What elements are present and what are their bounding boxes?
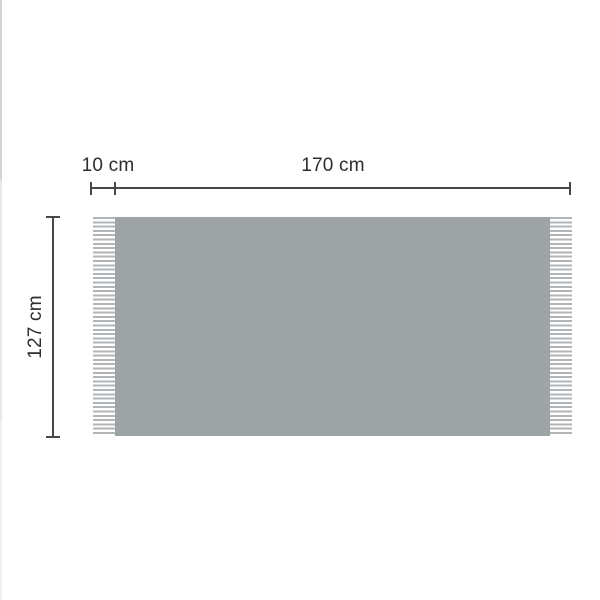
dimension-cap-top bbox=[46, 216, 60, 218]
fringe-width-label: 10 cm bbox=[82, 155, 135, 177]
blanket-fringe-right bbox=[550, 217, 572, 436]
blanket-fringe-left bbox=[93, 217, 115, 436]
vertical-dimension-line bbox=[52, 217, 54, 438]
dimension-cap-bottom bbox=[46, 436, 60, 438]
dimension-diagram: 10 cm 170 cm 127 cm bbox=[0, 0, 600, 600]
dimension-tick-fringe-body bbox=[114, 182, 116, 195]
horizontal-dimension-line bbox=[91, 187, 571, 189]
blanket-body bbox=[115, 217, 550, 436]
body-width-label: 170 cm bbox=[301, 155, 365, 177]
height-label: 127 cm bbox=[25, 295, 47, 359]
left-edge-line bbox=[0, 0, 2, 600]
dimension-tick-left bbox=[90, 182, 92, 195]
dimension-tick-right bbox=[569, 182, 571, 195]
